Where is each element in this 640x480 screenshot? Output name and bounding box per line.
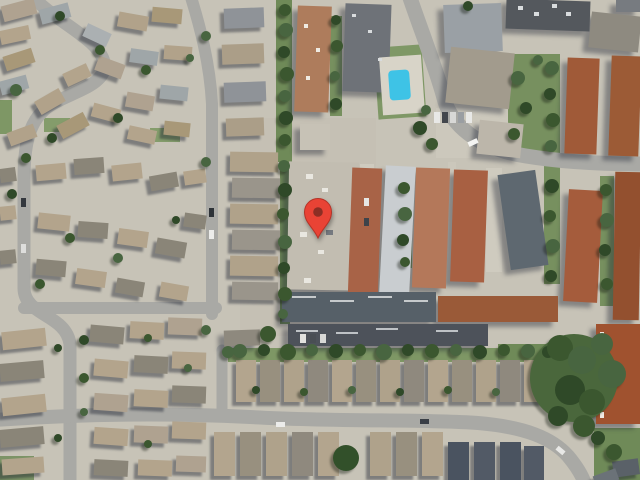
car bbox=[450, 112, 456, 123]
roof-detail bbox=[306, 76, 310, 80]
tree bbox=[545, 270, 557, 282]
house bbox=[168, 317, 203, 335]
tree bbox=[7, 189, 17, 199]
car bbox=[364, 198, 369, 206]
roof-detail bbox=[404, 300, 428, 302]
tree bbox=[278, 160, 290, 172]
house bbox=[380, 360, 400, 402]
house bbox=[73, 157, 104, 175]
tree bbox=[144, 440, 152, 448]
house bbox=[422, 432, 443, 476]
house bbox=[214, 432, 235, 476]
tree bbox=[47, 133, 57, 143]
tree bbox=[376, 344, 392, 360]
house bbox=[77, 221, 108, 239]
tree bbox=[354, 344, 366, 356]
tree bbox=[425, 344, 439, 358]
roof-detail bbox=[518, 6, 523, 10]
building bbox=[294, 5, 332, 112]
roof-detail bbox=[300, 232, 307, 237]
tree bbox=[80, 408, 88, 416]
tree bbox=[144, 334, 152, 342]
building bbox=[348, 168, 383, 299]
car bbox=[300, 334, 306, 343]
tree bbox=[348, 386, 356, 394]
house bbox=[111, 162, 143, 181]
house bbox=[474, 442, 495, 480]
house bbox=[230, 204, 278, 225]
tree bbox=[184, 364, 192, 372]
house bbox=[266, 432, 287, 476]
tree bbox=[278, 235, 292, 249]
house bbox=[260, 360, 280, 402]
roof-detail bbox=[316, 48, 320, 52]
tree bbox=[279, 134, 291, 146]
tree bbox=[233, 344, 247, 358]
building bbox=[445, 47, 515, 109]
house bbox=[89, 325, 124, 345]
tree bbox=[546, 113, 560, 127]
roof-detail bbox=[376, 328, 398, 330]
roof-detail bbox=[304, 24, 308, 28]
tree bbox=[330, 71, 340, 81]
tree bbox=[421, 105, 431, 115]
tree bbox=[601, 278, 613, 290]
house bbox=[292, 432, 313, 476]
tree bbox=[600, 213, 614, 227]
house bbox=[230, 152, 278, 173]
house bbox=[356, 360, 376, 402]
roof-detail bbox=[368, 30, 372, 33]
tree bbox=[21, 153, 31, 163]
house bbox=[37, 212, 70, 231]
tree bbox=[329, 344, 343, 358]
building bbox=[224, 329, 261, 346]
house bbox=[500, 442, 521, 480]
house bbox=[159, 85, 188, 102]
roof-detail bbox=[336, 332, 358, 334]
tree bbox=[498, 344, 510, 356]
tree bbox=[398, 207, 412, 221]
tree bbox=[55, 11, 65, 21]
tree bbox=[573, 415, 595, 437]
house bbox=[232, 178, 280, 199]
roof-detail bbox=[352, 14, 356, 17]
house bbox=[35, 259, 66, 278]
tree bbox=[277, 208, 289, 220]
map-canvas[interactable] bbox=[0, 0, 640, 480]
house bbox=[1, 457, 44, 476]
building bbox=[288, 324, 488, 346]
car bbox=[209, 208, 214, 217]
house bbox=[428, 360, 448, 402]
house bbox=[0, 249, 17, 265]
tree bbox=[201, 31, 211, 41]
tree bbox=[444, 386, 452, 394]
roof-detail bbox=[292, 296, 316, 298]
building bbox=[563, 189, 603, 303]
car bbox=[21, 244, 26, 253]
tree bbox=[278, 262, 290, 274]
house bbox=[284, 360, 304, 402]
roof-detail bbox=[306, 174, 313, 179]
tree bbox=[79, 373, 89, 383]
tree bbox=[398, 182, 410, 194]
house bbox=[172, 385, 207, 403]
tree bbox=[172, 216, 180, 224]
house bbox=[138, 459, 173, 476]
house bbox=[0, 426, 45, 448]
house bbox=[0, 167, 17, 183]
tree bbox=[599, 244, 611, 256]
tree bbox=[606, 444, 622, 460]
building bbox=[506, 0, 591, 31]
house bbox=[476, 360, 496, 402]
tree bbox=[508, 128, 520, 140]
house bbox=[0, 360, 45, 382]
roof-detail bbox=[318, 250, 324, 254]
roof-detail bbox=[378, 58, 382, 61]
tree bbox=[95, 45, 105, 55]
house bbox=[35, 163, 66, 182]
house bbox=[224, 81, 267, 102]
house bbox=[370, 432, 391, 476]
tree bbox=[511, 71, 525, 85]
building bbox=[613, 172, 640, 320]
house bbox=[93, 427, 128, 446]
roof-detail bbox=[296, 330, 318, 332]
tree bbox=[279, 4, 291, 16]
car bbox=[442, 112, 448, 123]
house bbox=[224, 7, 265, 28]
house bbox=[151, 7, 182, 25]
house bbox=[93, 393, 128, 412]
tree bbox=[544, 88, 556, 100]
building bbox=[588, 11, 640, 52]
tree bbox=[279, 90, 291, 102]
house bbox=[452, 360, 472, 402]
swimming-pool bbox=[388, 69, 411, 100]
car bbox=[276, 422, 285, 427]
map-viewport bbox=[0, 0, 640, 480]
tree bbox=[533, 55, 543, 65]
roof-detail bbox=[322, 188, 328, 192]
tree bbox=[54, 344, 62, 352]
tree bbox=[568, 346, 596, 374]
roof-detail bbox=[330, 300, 354, 302]
tree bbox=[544, 210, 556, 222]
pool-area bbox=[379, 55, 425, 116]
tree bbox=[54, 434, 62, 442]
building bbox=[412, 167, 450, 288]
tree bbox=[579, 389, 605, 415]
car bbox=[434, 112, 440, 123]
house bbox=[0, 205, 17, 221]
roof-detail bbox=[436, 330, 458, 332]
building bbox=[438, 296, 558, 322]
tree bbox=[331, 15, 341, 25]
tree bbox=[426, 138, 438, 150]
tree bbox=[260, 326, 276, 342]
house bbox=[134, 355, 169, 374]
building bbox=[616, 0, 640, 12]
tree bbox=[278, 46, 290, 58]
house bbox=[396, 432, 417, 476]
house bbox=[163, 121, 190, 138]
building bbox=[450, 169, 488, 282]
tree bbox=[545, 140, 557, 152]
tree bbox=[396, 388, 404, 396]
tree bbox=[413, 121, 427, 135]
tree bbox=[450, 344, 462, 356]
tree bbox=[79, 335, 89, 345]
car bbox=[420, 419, 429, 424]
house bbox=[332, 360, 352, 402]
house bbox=[236, 360, 256, 402]
house bbox=[230, 256, 278, 277]
tree bbox=[397, 234, 409, 246]
tree bbox=[141, 65, 151, 75]
tree bbox=[591, 333, 613, 355]
tree bbox=[473, 345, 487, 359]
tree bbox=[492, 388, 500, 396]
tree bbox=[10, 84, 22, 96]
tree bbox=[258, 344, 270, 356]
building bbox=[443, 3, 503, 53]
tree bbox=[278, 309, 288, 319]
tree bbox=[331, 40, 343, 52]
tree bbox=[546, 239, 560, 253]
house bbox=[134, 389, 169, 408]
tree bbox=[520, 102, 532, 114]
roof-detail bbox=[368, 296, 392, 298]
house bbox=[134, 425, 169, 443]
house bbox=[222, 43, 265, 64]
tree bbox=[65, 233, 75, 243]
tree bbox=[280, 344, 296, 360]
tree bbox=[548, 406, 568, 426]
roof-detail bbox=[566, 12, 571, 16]
tree bbox=[113, 253, 123, 263]
tree bbox=[402, 344, 414, 356]
tree bbox=[521, 344, 535, 358]
grass-patch bbox=[0, 100, 12, 134]
roof-detail bbox=[304, 278, 311, 283]
tree bbox=[463, 1, 473, 11]
tree bbox=[330, 98, 342, 110]
house bbox=[232, 282, 278, 301]
tree bbox=[278, 287, 292, 301]
tree bbox=[333, 445, 359, 471]
tree bbox=[400, 257, 410, 267]
tree bbox=[591, 431, 605, 445]
tree bbox=[35, 279, 45, 289]
car bbox=[21, 198, 26, 207]
house bbox=[226, 117, 265, 136]
house bbox=[448, 442, 469, 480]
tree bbox=[278, 183, 292, 197]
tree bbox=[201, 325, 211, 335]
house bbox=[500, 360, 520, 402]
roof-detail bbox=[326, 230, 333, 235]
car bbox=[320, 334, 326, 343]
tree bbox=[300, 388, 308, 396]
car bbox=[209, 230, 214, 239]
pin-dot bbox=[313, 207, 323, 217]
tree bbox=[201, 157, 211, 167]
tree bbox=[186, 54, 194, 62]
roof-detail bbox=[552, 4, 557, 8]
tree bbox=[598, 360, 626, 388]
building bbox=[608, 56, 640, 157]
car bbox=[364, 218, 369, 226]
house bbox=[240, 432, 261, 476]
house bbox=[232, 230, 280, 251]
tree bbox=[222, 346, 234, 358]
tree bbox=[306, 344, 318, 356]
house bbox=[524, 446, 544, 480]
tree bbox=[252, 386, 260, 394]
car bbox=[466, 112, 472, 123]
tree bbox=[545, 179, 559, 193]
car bbox=[458, 112, 464, 123]
tree bbox=[279, 23, 293, 37]
tree bbox=[600, 184, 612, 196]
tree bbox=[279, 111, 293, 125]
car bbox=[310, 334, 316, 343]
house bbox=[172, 421, 207, 439]
building bbox=[300, 124, 330, 150]
house bbox=[93, 359, 128, 379]
tree bbox=[113, 113, 123, 123]
roof-detail bbox=[534, 12, 539, 16]
house bbox=[404, 360, 424, 402]
house bbox=[94, 459, 129, 477]
house bbox=[176, 455, 207, 472]
building bbox=[564, 57, 599, 154]
tree bbox=[545, 61, 559, 75]
tree bbox=[280, 67, 294, 81]
house bbox=[308, 360, 328, 402]
